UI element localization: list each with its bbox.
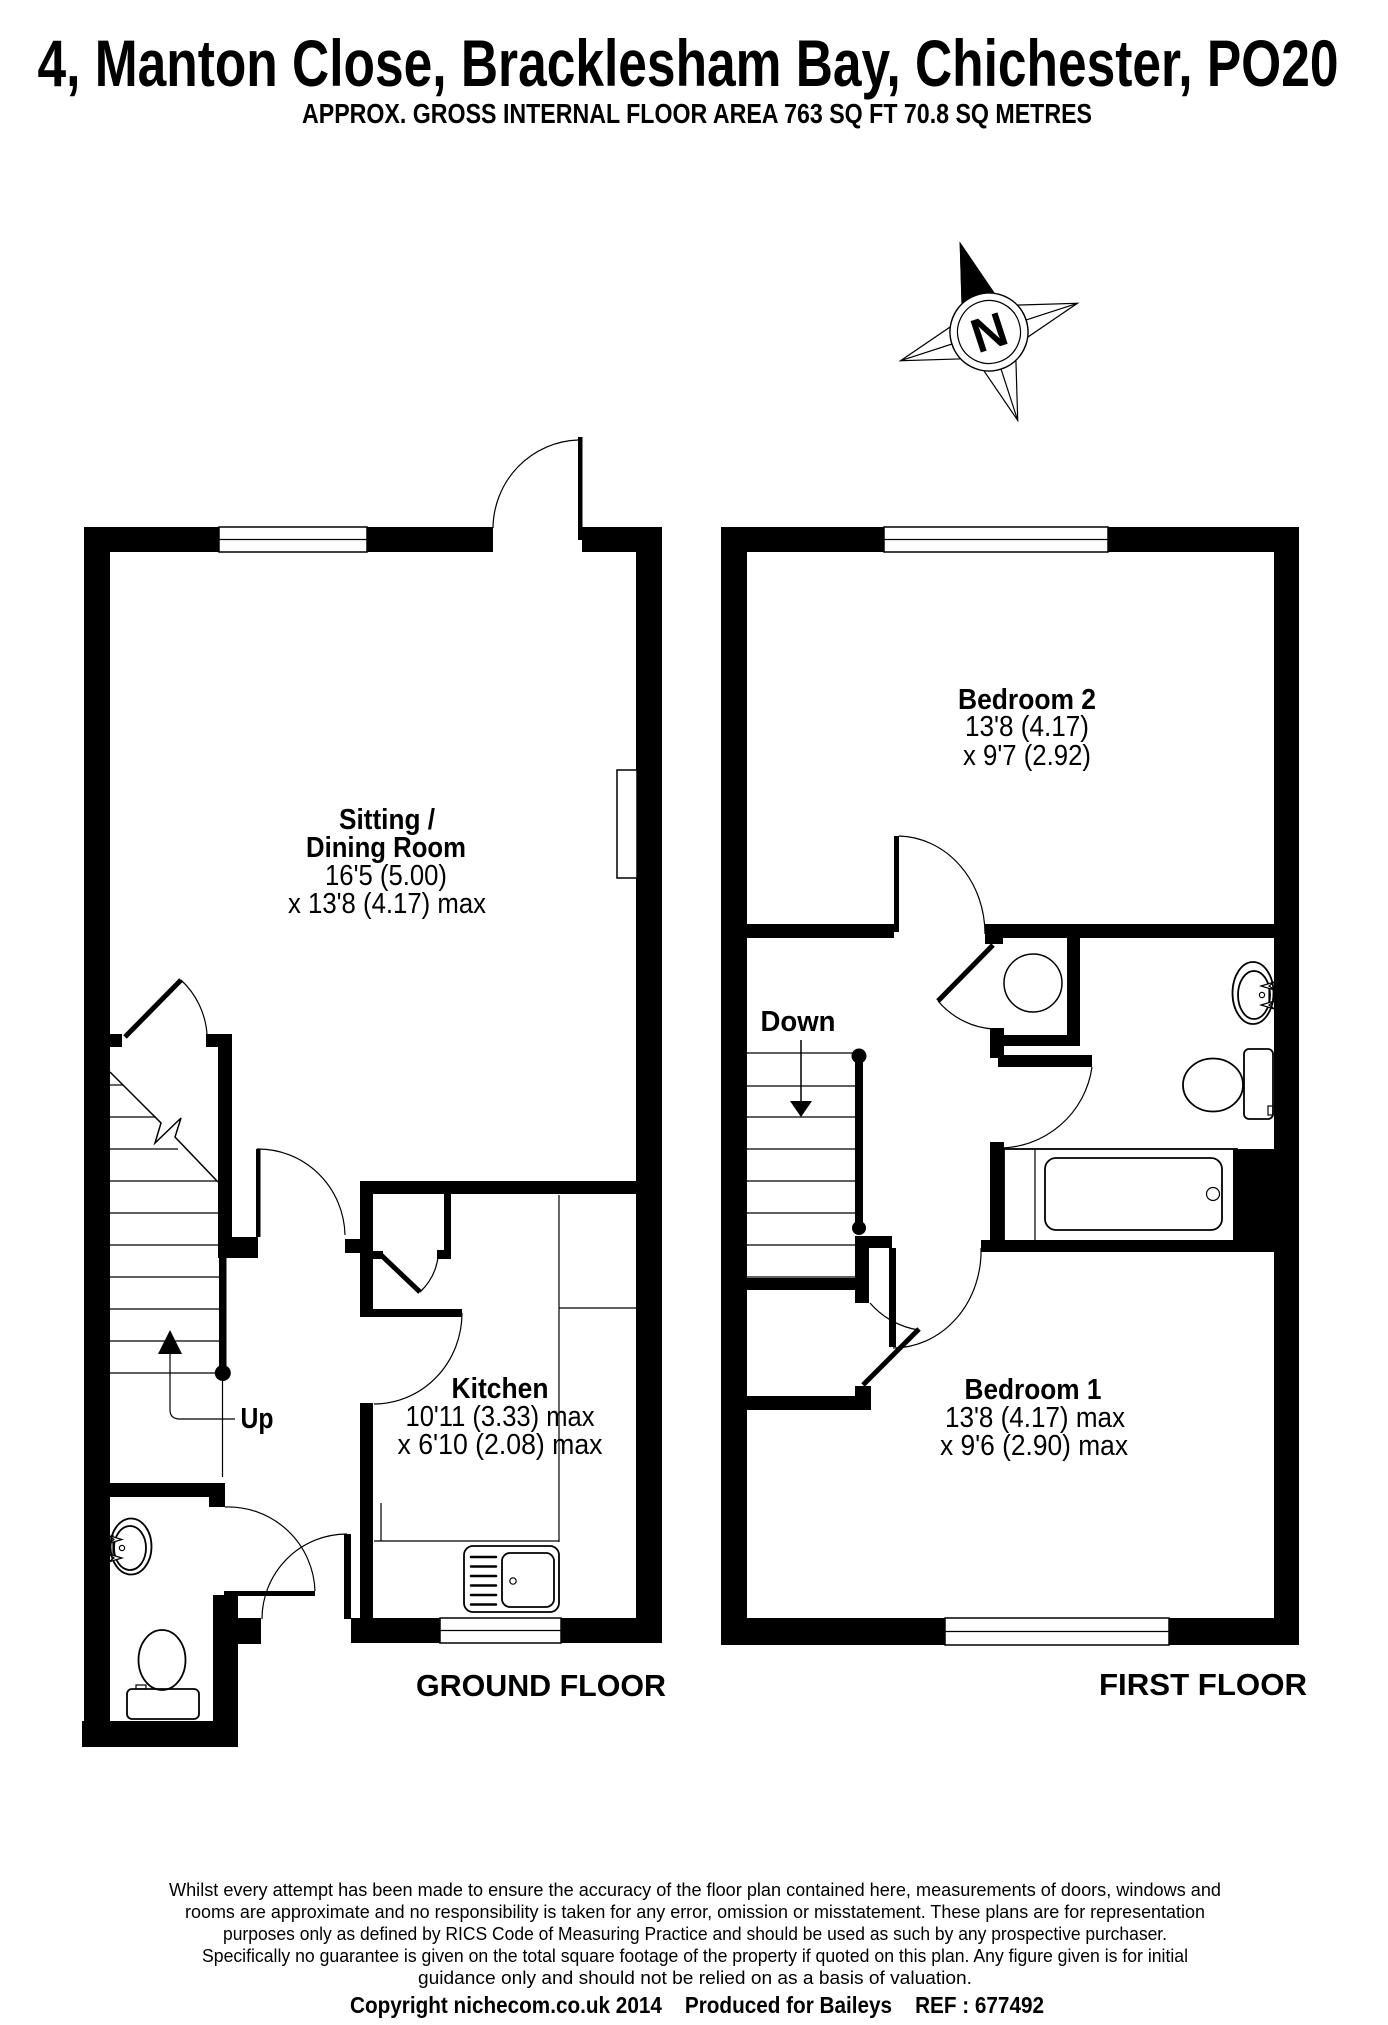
svg-text:guidance only and should not b: guidance only and should not be relied o… (418, 1967, 972, 1988)
svg-text:4, Manton Close, Bracklesham B: 4, Manton Close, Bracklesham Bay, Chiche… (38, 26, 1339, 100)
svg-text:Down: Down (761, 1006, 836, 1038)
svg-text:purposes only as defined by RI: purposes only as defined by RICS Code of… (223, 1923, 1167, 1944)
svg-text:x 9'6 (2.90) max: x 9'6 (2.90) max (940, 1430, 1128, 1462)
svg-text:x 6'10 (2.08) max: x 6'10 (2.08) max (398, 1429, 603, 1461)
svg-text:Copyright nichecom.co.uk 2014: Copyright nichecom.co.uk 2014 Produced f… (350, 1992, 1044, 2018)
svg-text:FIRST FLOOR: FIRST FLOOR (1099, 1667, 1307, 1702)
svg-text:Specifically no guarantee is g: Specifically no guarantee is given on th… (202, 1945, 1188, 1966)
svg-text:APPROX. GROSS INTERNAL FLOOR A: APPROX. GROSS INTERNAL FLOOR AREA 763 SQ… (302, 98, 1092, 129)
svg-text:rooms are approximate and no r: rooms are approximate and no responsibil… (185, 1901, 1205, 1922)
svg-text:Whilst every attempt has been: Whilst every attempt has been made to en… (169, 1879, 1221, 1900)
svg-text:GROUND FLOOR: GROUND FLOOR (416, 1668, 666, 1703)
svg-text:x 9'7 (2.92): x 9'7 (2.92) (963, 740, 1091, 772)
svg-text:13'8 (4.17): 13'8 (4.17) (965, 711, 1089, 743)
svg-text:Up: Up (241, 1403, 274, 1435)
svg-text:x 13'8 (4.17) max: x 13'8 (4.17) max (288, 888, 486, 920)
